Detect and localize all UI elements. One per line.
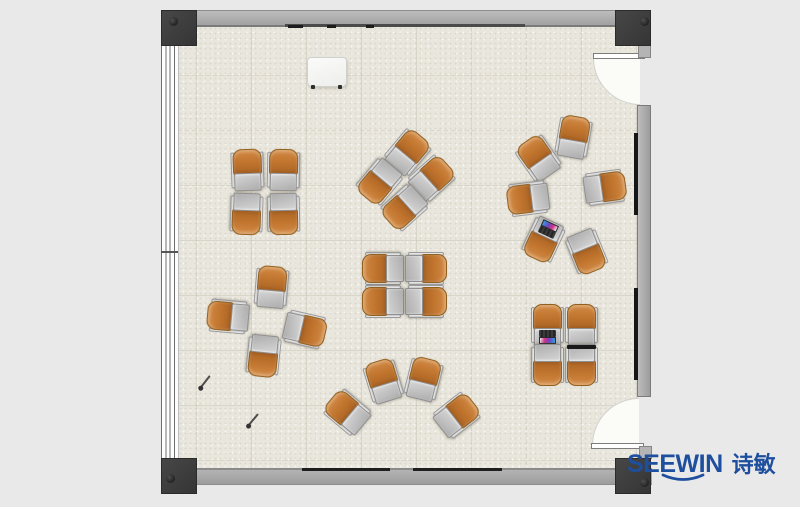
wall-mount-tick <box>288 25 303 28</box>
whiteboard <box>307 57 347 87</box>
wall-rail <box>413 468 502 471</box>
wall-rail <box>634 133 638 215</box>
tablet-desk <box>250 333 279 354</box>
chair-seat <box>268 208 297 235</box>
chair-desk-unit <box>404 252 447 285</box>
tablet-desk <box>556 137 586 159</box>
chair-desk-unit <box>229 191 263 235</box>
wall-rail <box>302 468 390 471</box>
tablet-desk <box>386 255 404 282</box>
logo-swoosh-icon <box>660 473 706 483</box>
corner-post-top-left <box>161 10 197 46</box>
door-leaf-bottom <box>591 443 644 449</box>
tablet-desk <box>269 172 296 190</box>
chair-seat <box>268 148 297 175</box>
chair-desk-unit <box>580 168 627 207</box>
caster <box>311 85 315 89</box>
chair-desk-unit <box>565 304 598 347</box>
corner-post-bottom-left <box>161 458 197 494</box>
tablet-desk <box>256 288 284 308</box>
glass-wall-left <box>161 46 179 458</box>
wall-mount-tick <box>366 25 374 28</box>
brand-cjk-text: 诗敏 <box>732 452 776 477</box>
tablet-desk <box>405 255 423 282</box>
chair-desk-unit <box>531 304 564 347</box>
wall-top-rail <box>285 24 525 27</box>
tablet-desk <box>405 288 423 315</box>
chair-seat <box>533 304 562 330</box>
door-frame-tab-top <box>638 45 651 58</box>
caster <box>338 85 342 89</box>
tablet-desk <box>582 174 604 203</box>
chair-desk-unit <box>531 343 564 386</box>
chair-desk-unit <box>253 264 290 310</box>
chair-seat <box>421 287 447 316</box>
chair-desk-unit <box>553 113 593 161</box>
chair-desk-unit <box>205 298 251 335</box>
chair-desk-unit <box>244 332 281 378</box>
tablet-desk <box>234 172 262 191</box>
brand-logo: SEEWIN 诗敏 <box>627 452 776 477</box>
chair-seat <box>362 254 388 283</box>
chair-seat <box>533 360 562 386</box>
chair-seat <box>567 304 596 330</box>
floor-plan-render: SEEWIN 诗敏 <box>0 0 800 507</box>
corner-post-top-right <box>615 10 651 46</box>
post-cap <box>640 478 649 487</box>
tablet-desk <box>229 303 249 331</box>
chair-desk-unit <box>362 285 405 318</box>
chair-seat <box>232 148 262 175</box>
laptop-keyboard <box>539 330 556 337</box>
wall-right <box>637 105 651 397</box>
wall-rail <box>634 288 638 380</box>
chair-desk-unit <box>266 148 300 192</box>
mullion-joint <box>161 251 178 253</box>
laptop-closed <box>567 345 596 349</box>
tablet-desk <box>269 192 296 210</box>
chair-seat <box>567 360 596 386</box>
post-cap <box>169 17 178 26</box>
chair-seat <box>231 208 261 235</box>
chair-desk-unit <box>404 285 447 318</box>
chair-desk-unit <box>362 252 405 285</box>
chair-seat <box>421 254 447 283</box>
wall-mount-tick <box>327 25 336 28</box>
tablet-desk <box>386 288 404 315</box>
post-cap <box>166 474 175 483</box>
chair-desk-unit <box>266 191 300 235</box>
brand-wordmark: SEEWIN <box>627 452 723 477</box>
tablet-desk <box>529 182 550 211</box>
chair-desk-unit <box>505 179 552 217</box>
chair-desk-unit <box>565 343 598 386</box>
post-cap <box>640 17 649 26</box>
chair-seat <box>362 287 388 316</box>
tablet-desk <box>534 344 561 362</box>
chair-desk-unit <box>230 148 264 192</box>
tablet-desk <box>233 192 261 211</box>
